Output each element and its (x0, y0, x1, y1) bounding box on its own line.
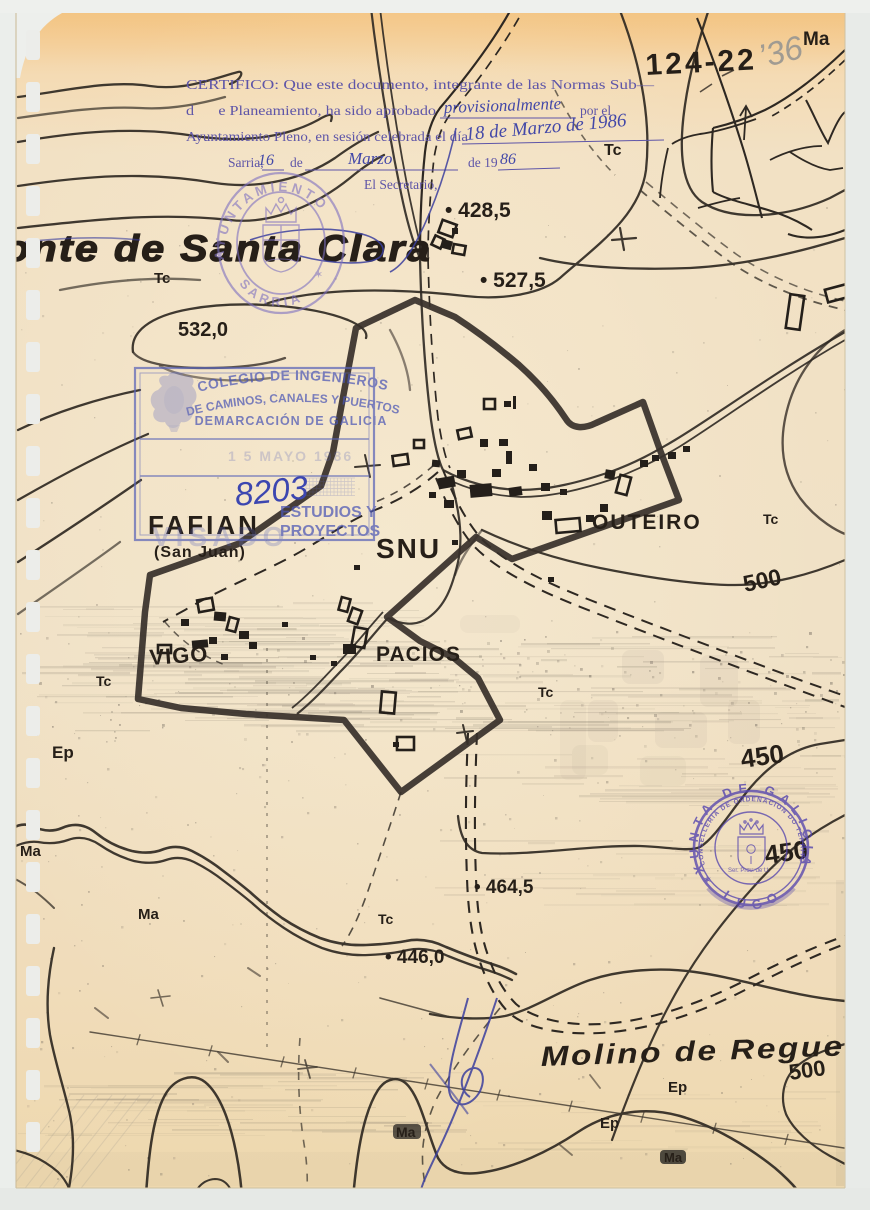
svg-text:• 446,0: • 446,0 (385, 947, 444, 968)
svg-text:• 428,5: • 428,5 (445, 199, 511, 222)
svg-text:DEMARCACIÓN DE GALICIA: DEMARCACIÓN DE GALICIA (195, 413, 388, 428)
svg-text:Ma: Ma (138, 906, 159, 923)
svg-text:El Secretario,: El Secretario, (364, 177, 437, 192)
svg-text:1 5 MAYO 1986: 1 5 MAYO 1986 (228, 448, 353, 464)
svg-text:532,0: 532,0 (178, 319, 228, 341)
svg-text:• 527,5: • 527,5 (480, 269, 546, 292)
svg-text:Tc: Tc (154, 270, 170, 287)
svg-text:VISADO: VISADO (152, 521, 289, 552)
svg-text:VIGO: VIGO (149, 641, 210, 670)
svg-text:124-22: 124-22 (645, 43, 758, 82)
svg-text:16: 16 (258, 152, 274, 169)
svg-text:Ep: Ep (600, 1115, 619, 1132)
svg-text:OUTEIRO: OUTEIRO (592, 511, 702, 534)
svg-text:Tc: Tc (538, 684, 554, 700)
svg-text:Ma: Ma (20, 843, 41, 860)
svg-text:Tc: Tc (96, 673, 112, 689)
svg-text:450: 450 (739, 738, 786, 774)
svg-text:Ayuntamiento Pleno, en sesión: Ayuntamiento Pleno, en sesión celebrada … (186, 129, 468, 144)
svg-text:PROYECTOS: PROYECTOS (280, 523, 381, 540)
svg-text:CERTIFICO: Que este documento,: CERTIFICO: Que este documento, integrant… (186, 77, 655, 92)
svg-text:Tc: Tc (604, 142, 622, 159)
svg-text:Tc: Tc (378, 911, 394, 927)
svg-text:Ma: Ma (396, 1124, 416, 1140)
svg-text:Tc: Tc (763, 511, 779, 527)
svg-text:d e Planeamiento, ha sido: d e Planeamiento, ha sido aprobado (186, 103, 436, 118)
svg-text:✶: ✶ (314, 269, 323, 281)
svg-text:86: 86 (500, 151, 516, 168)
svg-text:de 19: de 19 (468, 155, 498, 170)
svg-text:Ma: Ma (803, 29, 830, 50)
svg-text:Ma: Ma (664, 1150, 683, 1165)
svg-text:8203: 8203 (233, 468, 311, 513)
svg-text:PACIOS: PACIOS (376, 643, 461, 666)
svg-text:✶: ✶ (702, 873, 712, 887)
svg-text:• 464,5: • 464,5 (474, 877, 534, 898)
svg-text:Marzo: Marzo (347, 149, 392, 168)
svg-text:Ep: Ep (668, 1079, 687, 1096)
svg-text:Ep: Ep (52, 743, 74, 762)
svg-text:SNU: SNU (376, 533, 441, 564)
svg-text:de: de (290, 155, 303, 170)
